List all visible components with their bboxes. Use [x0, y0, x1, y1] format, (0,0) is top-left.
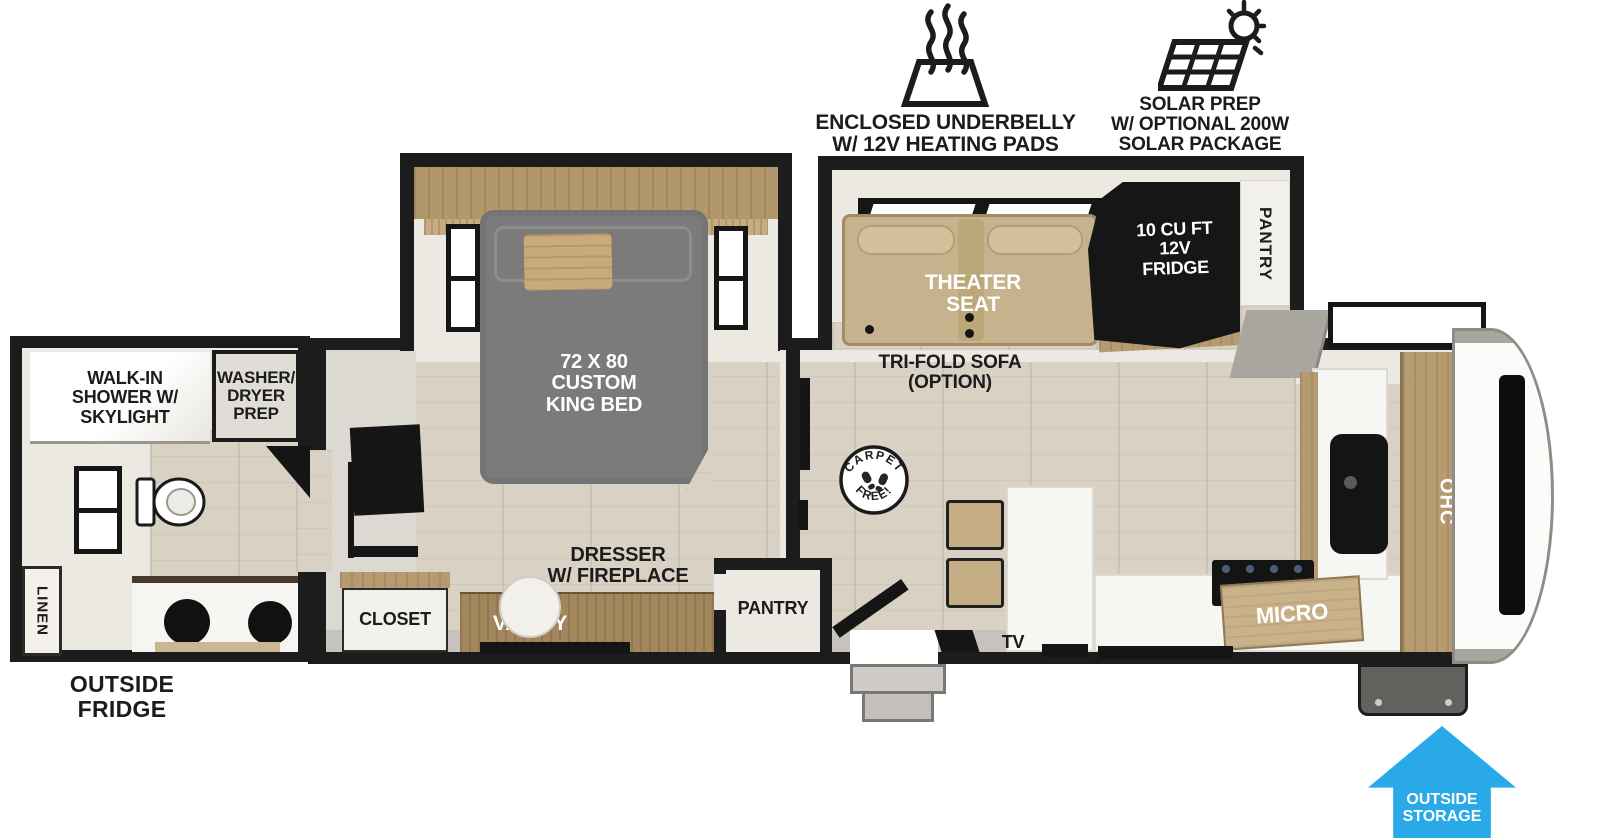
bar-stool-2: [946, 558, 1004, 608]
microwave: MICRO: [1220, 575, 1364, 651]
living-pantry-label: PANTRY: [1247, 185, 1283, 303]
cupholder-3: [965, 329, 974, 338]
closet-label: CLOSET: [346, 604, 444, 636]
hall-tv: [800, 378, 810, 470]
bedroom-window-right: [714, 226, 748, 330]
bathroom-sink-left: [164, 599, 210, 645]
outside-storage-label: OUTSIDE STORAGE: [1390, 784, 1494, 832]
bathroom-double-sink-counter: [132, 576, 298, 652]
solar-feature-label: SOLAR PREP W/ OPTIONAL 200W SOLAR PACKAG…: [1082, 94, 1318, 156]
entry-door-jamb: [934, 630, 979, 652]
closet: CLOSET: [342, 588, 448, 652]
kitchen-tall-cabinet: [1300, 372, 1318, 578]
king-bed-label: 72 X 80 CUSTOM KING BED: [499, 344, 689, 424]
bedroom-pantry-door-gap: [714, 574, 726, 610]
entry-step-1: [850, 664, 946, 694]
heating-pads-icon: [893, 2, 997, 110]
hall-tv-bracket: [798, 500, 808, 530]
bedroom-pantry-label: PANTRY: [726, 596, 820, 622]
bathroom-sink-right: [248, 601, 292, 645]
living-pantry: PANTRY: [1240, 180, 1290, 306]
washer-dryer-label: WASHER/ DRYER PREP: [218, 362, 294, 430]
linen-label: LINEN: [25, 569, 59, 653]
carpet-free-badge: CARPET FREE!: [838, 444, 910, 516]
faucet: [1344, 476, 1357, 489]
linen-cabinet: LINEN: [22, 566, 62, 656]
underbelly-feature-label: ENCLOSED UNDERBELLY W/ 12V HEATING PADS: [808, 110, 1083, 158]
storage-screw-2: [1445, 699, 1452, 706]
tv-label: TV: [988, 632, 1038, 654]
front-cap-window: [1499, 375, 1525, 615]
entry-step-2: [862, 694, 934, 722]
stove-knob-3: [1270, 565, 1278, 573]
outside-fridge-label: OUTSIDE FRIDGE: [42, 672, 202, 722]
stove-knob-2: [1246, 565, 1254, 573]
stove-knob-1: [1222, 565, 1230, 573]
theater-headrest-left: [857, 225, 955, 255]
bedroom-divider-wall: [786, 350, 800, 576]
walk-in-shower: WALK-IN SHOWER W/ SKYLIGHT: [30, 352, 210, 444]
bottom-window-bedroom: [480, 642, 630, 654]
bottom-window-kitchen: [1098, 646, 1233, 659]
outside-storage-arrow: OUTSIDE STORAGE: [1368, 726, 1516, 838]
kitchen-sink: [1330, 434, 1388, 554]
floorplan-scene: ENCLOSED UNDERBELLY W/ 12V HEATING PADS …: [0, 0, 1600, 839]
trifold-sofa-label: TRI-FOLD SOFA (OPTION): [860, 350, 1040, 396]
tv-mount-post: [348, 462, 354, 558]
bedroom-window-left: [446, 224, 480, 332]
microwave-label: MICRO: [1233, 596, 1351, 632]
bed-pillow: [524, 233, 613, 291]
bathroom-window: [74, 466, 122, 554]
tv-mount-shelf: [348, 546, 418, 557]
solar-panel-icon: [1158, 0, 1270, 96]
bedroom-tv: [350, 424, 425, 516]
toilet: [134, 472, 208, 532]
bottom-wall-tv: [1042, 644, 1088, 657]
walk-in-shower-label: WALK-IN SHOWER W/ SKYLIGHT: [50, 360, 200, 436]
closet-top: [340, 572, 450, 588]
king-bed: 72 X 80 CUSTOM KING BED: [480, 210, 708, 484]
kitchen-island: [1006, 486, 1094, 652]
theater-headrest-right: [987, 225, 1083, 255]
divider-wall-face: [780, 350, 786, 576]
front-cap: [1452, 328, 1554, 664]
entry-door-opening: [850, 630, 938, 664]
bar-stool-1: [946, 500, 1004, 550]
dresser-fireplace-label: DRESSER W/ FIREPLACE: [538, 544, 698, 588]
outside-storage-door: [1358, 664, 1468, 716]
storage-screw-1: [1375, 699, 1382, 706]
washer-dryer-prep: WASHER/ DRYER PREP: [212, 350, 300, 442]
bath-mat: [155, 642, 280, 652]
fridge-label: 10 CU FT 12V FRIDGE: [1119, 214, 1231, 284]
fridge-12v: 10 CU FT 12V FRIDGE: [1088, 182, 1246, 350]
stove-knob-4: [1294, 565, 1302, 573]
theater-seat: THEATER SEAT: [842, 214, 1098, 346]
theater-seat-label: THEATER SEAT: [888, 269, 1058, 319]
cupholder-1: [865, 325, 874, 334]
